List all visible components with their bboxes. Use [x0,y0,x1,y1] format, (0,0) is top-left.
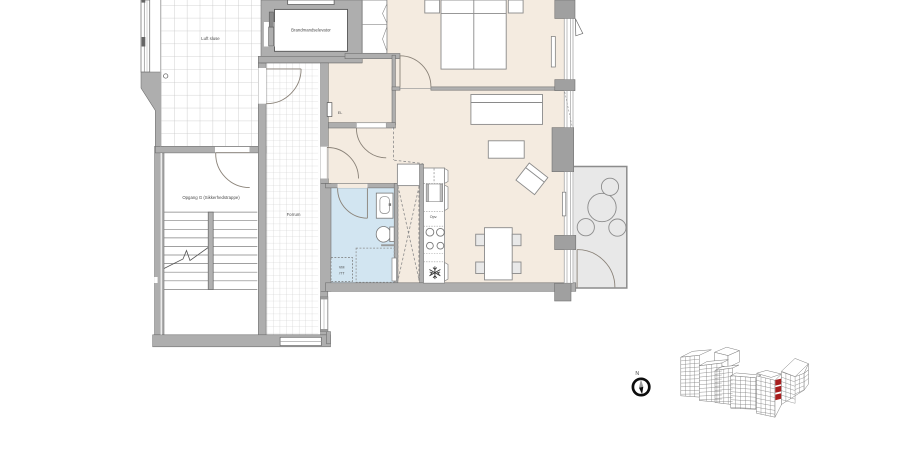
svg-text:Brandmandselevator: Brandmandselevator [291,28,331,33]
svg-text:Forrum: Forrum [287,212,301,217]
svg-text:N: N [635,371,639,377]
svg-text:/TT: /TT [339,272,345,276]
svg-text:EL: EL [338,111,343,115]
svg-text:Opgang G (Sikkerhedstrappe): Opgang G (Sikkerhedstrappe) [182,195,240,200]
svg-text:VM: VM [339,266,345,270]
svg-text:Opv.: Opv. [430,215,438,219]
svg-text:Luft sluse: Luft sluse [201,36,220,41]
